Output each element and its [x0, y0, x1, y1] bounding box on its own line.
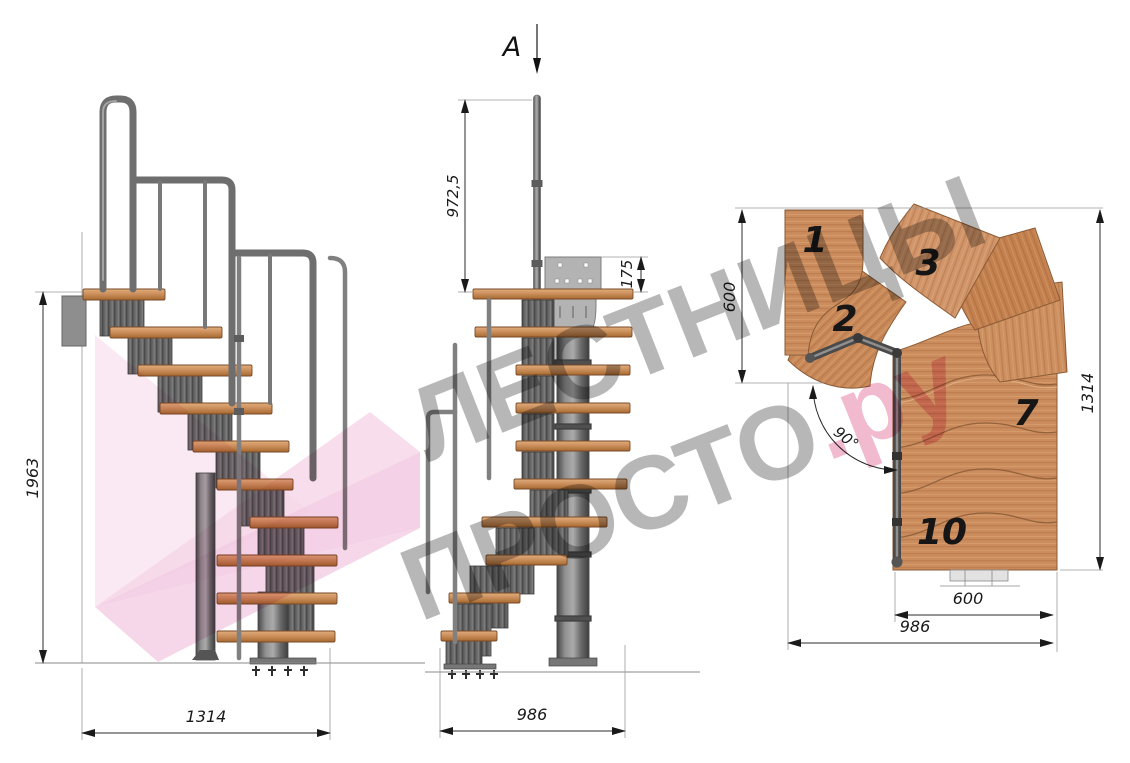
dim-front-rail-height: 972,5	[444, 175, 462, 218]
plan-step-number-7: 7	[1013, 393, 1038, 434]
angle-arc	[813, 386, 897, 470]
support-column	[196, 473, 215, 660]
far-rail-post	[330, 258, 345, 548]
anchor-bolts	[252, 666, 308, 676]
section-arrow: A	[501, 24, 541, 74]
post-collar	[532, 180, 543, 187]
dim-plan-width: 986	[900, 617, 931, 636]
plan-step-number-2: 2	[832, 299, 857, 340]
dim-plan-exit: 600	[953, 589, 984, 608]
section-arrowhead-icon	[533, 58, 541, 74]
post-collar	[532, 260, 543, 267]
rail-collar	[234, 408, 244, 415]
dim-plan-depth: 1314	[1078, 373, 1097, 414]
plan-step-number-10: 10	[917, 512, 967, 553]
plan-base-plate	[940, 570, 1020, 586]
dim-plan-entry: 600	[720, 282, 739, 313]
handrail-loop	[103, 99, 133, 289]
rail-collar	[234, 335, 244, 342]
side-view: 1963 1314	[23, 99, 425, 740]
wall-bracket	[62, 296, 86, 346]
dim-front-width: 986	[517, 705, 548, 724]
drawing-canvas: { "section_label": "A", "watermark": { "…	[0, 0, 1130, 763]
plan-step-number-3: 3	[915, 243, 940, 284]
plan-step-number-1: 1	[802, 220, 827, 261]
technical-drawing: 1963 1314 A	[0, 0, 1130, 763]
dim-side-width: 1314	[186, 707, 227, 726]
section-label: A	[501, 32, 521, 63]
dim-front-plate: 175	[618, 260, 636, 289]
plan-view: 1 2 3 7 10 600	[720, 204, 1103, 652]
dim-side-height: 1963	[23, 458, 42, 499]
front-view: A	[425, 24, 700, 738]
dim-plan-angle: 90°	[830, 423, 862, 454]
central-column-base	[549, 658, 597, 666]
